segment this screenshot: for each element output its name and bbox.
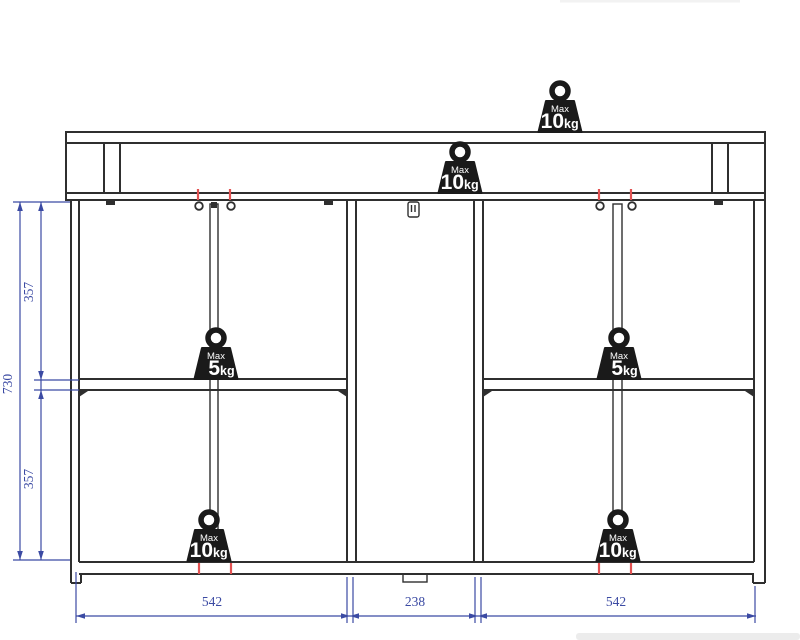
shelf-bracket-icon (79, 391, 88, 397)
weight-amount: 10 (190, 539, 213, 562)
dimension-right-width: 542 (606, 594, 626, 609)
center-latch-icon (408, 202, 419, 217)
left-divider-cap (211, 202, 217, 208)
left-partition-panel (347, 200, 356, 562)
shelf-bracket-icon (338, 391, 347, 397)
max-weight-icon-right-shelf: Max 5 kg (598, 330, 641, 380)
max-weight-icon-left-bottom: Max 10 kg (188, 512, 231, 562)
top-board-assembly (66, 132, 765, 200)
max-weight-icon-carcass-top: Max 10 kg (439, 144, 482, 194)
arrowhead-icon (38, 202, 44, 211)
dimension-left-width: 542 (202, 594, 222, 609)
shelf-bracket-icon (483, 391, 492, 397)
arrowhead-icon (341, 613, 350, 619)
arrowhead-icon (38, 371, 44, 380)
weight-amount: 10 (599, 539, 622, 562)
bottom-scrollbar[interactable] (576, 633, 800, 640)
arrowhead-icon (38, 551, 44, 560)
dimension-total-height: 730 (0, 374, 15, 395)
weight-unit: kg (220, 364, 235, 378)
shelf-bracket-icon (745, 391, 754, 397)
right-partition-panel (474, 200, 483, 562)
center-latch-body (408, 202, 419, 217)
weight-ring-icon (552, 83, 568, 99)
weight-unit: kg (622, 546, 637, 560)
right-standoff-bracket (712, 143, 728, 193)
technical-drawing-page: Max 10 kg Max 10 kg Max 5 kg Max 5 kg Ma… (0, 0, 800, 640)
max-weight-icon-right-bottom: Max 10 kg (597, 512, 640, 562)
hook-loop-icon (596, 202, 604, 210)
arrowhead-icon (17, 202, 23, 211)
hook-loop-icon (195, 202, 203, 210)
dimension-middle-width: 238 (405, 594, 426, 609)
dimension-annotations: 730 357 357 542 238 542 (0, 202, 756, 623)
carcass (71, 200, 765, 583)
arrowhead-icon (17, 551, 23, 560)
connector-mark (714, 201, 723, 205)
weight-ring-icon (208, 330, 224, 346)
weight-unit: kg (464, 178, 479, 192)
right-shelf (483, 379, 754, 390)
left-shelf (79, 379, 347, 390)
weight-unit: kg (564, 117, 579, 131)
weight-amount: 5 (611, 357, 623, 380)
center-foot (403, 574, 427, 582)
red-fixing-markers (198, 189, 631, 574)
weight-amount: 10 (441, 171, 464, 194)
max-weight-icon-top-board: Max 10 kg (539, 83, 582, 133)
weight-ring-icon (452, 144, 468, 160)
hook-loop-icon (227, 202, 235, 210)
arrowhead-icon (38, 390, 44, 399)
arrowhead-icon (478, 613, 487, 619)
arrowhead-icon (469, 613, 478, 619)
weight-unit: kg (213, 546, 228, 560)
arrowhead-icon (76, 613, 85, 619)
weight-ring-icon (611, 330, 627, 346)
right-section-divider (613, 204, 622, 562)
weight-ring-icon (201, 512, 217, 528)
furniture-diagram: Max 10 kg Max 10 kg Max 5 kg Max 5 kg Ma… (0, 0, 800, 640)
connector-mark (106, 201, 115, 205)
hook-loop-icon (628, 202, 636, 210)
weight-amount: 5 (208, 357, 220, 380)
weight-unit: kg (623, 364, 638, 378)
weight-amount: 10 (541, 110, 564, 133)
dimension-upper-height: 357 (21, 282, 36, 303)
max-weight-icon-left-shelf: Max 5 kg (195, 330, 238, 380)
dimension-lower-height: 357 (21, 469, 36, 490)
top-edge-artifact (560, 0, 740, 3)
left-standoff-bracket (104, 143, 120, 193)
weight-ring-icon (610, 512, 626, 528)
left-section-divider (210, 204, 218, 562)
arrowhead-icon (350, 613, 359, 619)
connector-mark (324, 201, 333, 205)
